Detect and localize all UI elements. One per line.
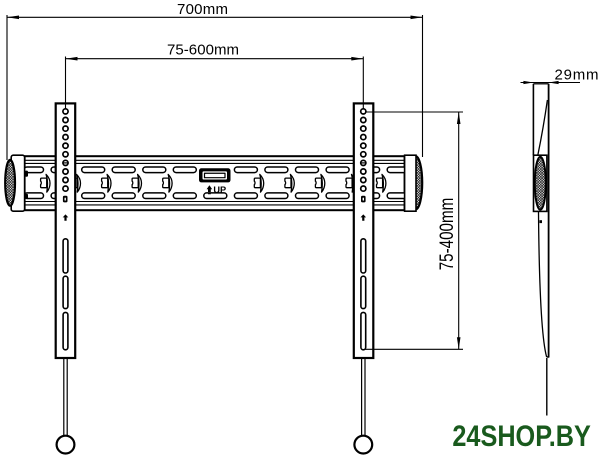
svg-text:29mm: 29mm (555, 66, 599, 83)
svg-text:75-600mm: 75-600mm (167, 42, 239, 59)
svg-text:700mm: 700mm (177, 1, 228, 18)
svg-text:75-400mm: 75-400mm (437, 198, 458, 271)
svg-text:24SHOP.BY: 24SHOP.BY (452, 420, 591, 453)
svg-text:UP: UP (213, 185, 226, 195)
